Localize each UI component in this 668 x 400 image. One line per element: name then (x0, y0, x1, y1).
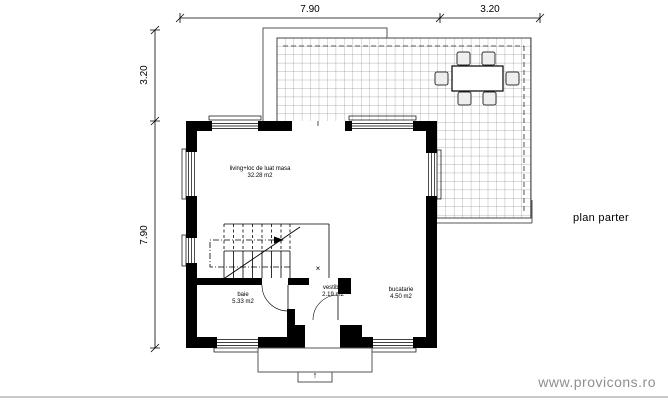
room-area-vestibul: 2.19 m2 (303, 292, 363, 299)
room-area-living: 32.28 m2 (200, 173, 320, 180)
website-watermark: www.provicons.ro (538, 374, 656, 390)
plan-title: plan parter (556, 212, 646, 225)
floor-plan-drawing (0, 0, 668, 400)
room-area-bucatarie: 4.50 m2 (371, 294, 431, 301)
room-name-living: living+loc de luat masa (200, 166, 320, 173)
dim-label-width-terrace: 3.20 (460, 4, 520, 16)
room-area-baie: 5.33 m2 (213, 299, 273, 306)
terrace-table (452, 66, 503, 91)
house-interior (186, 121, 437, 348)
room-name-vestibul: vestibul (303, 285, 363, 292)
room-label-baie: baie 5.33 m2 (213, 292, 273, 306)
room-name-bucatarie: bucatarie (371, 287, 431, 294)
room-label-bucatarie: bucatarie 4.50 m2 (371, 287, 431, 301)
floor-plan-page: 7.90 3.20 3.20 7.90 living+loc de luat m… (0, 0, 668, 400)
footer-divider (0, 396, 668, 398)
cross-marker: × (312, 264, 324, 273)
room-label-vestibul: vestibul 2.19 m2 (303, 285, 363, 299)
dim-label-height-house: 7.90 (139, 220, 153, 250)
room-label-living: living+loc de luat masa 32.28 m2 (200, 166, 320, 180)
entry-recess (305, 330, 340, 348)
dim-label-width-house: 7.90 (280, 4, 340, 16)
entry-direction-arrow: ↑ (309, 370, 321, 380)
dim-label-height-terrace: 3.20 (139, 60, 153, 90)
room-name-baie: baie (213, 292, 273, 299)
